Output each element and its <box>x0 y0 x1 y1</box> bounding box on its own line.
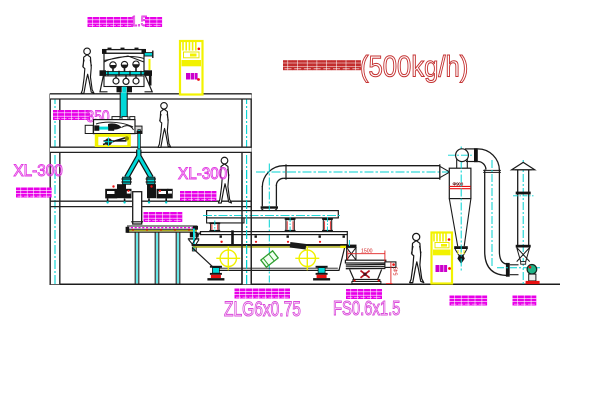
svg-text:545: 545 <box>394 267 400 276</box>
svg-text:FS0.6x1.5: FS0.6x1.5 <box>333 297 401 320</box>
svg-text:Φ900: Φ900 <box>453 182 464 187</box>
svg-text:(500kg/h): (500kg/h) <box>360 50 468 83</box>
svg-text:ZLG6x0.75: ZLG6x0.75 <box>224 297 301 321</box>
svg-text:XL-300: XL-300 <box>178 164 227 183</box>
svg-text:1500: 1500 <box>361 249 373 255</box>
svg-text:XL-300: XL-300 <box>14 161 63 180</box>
